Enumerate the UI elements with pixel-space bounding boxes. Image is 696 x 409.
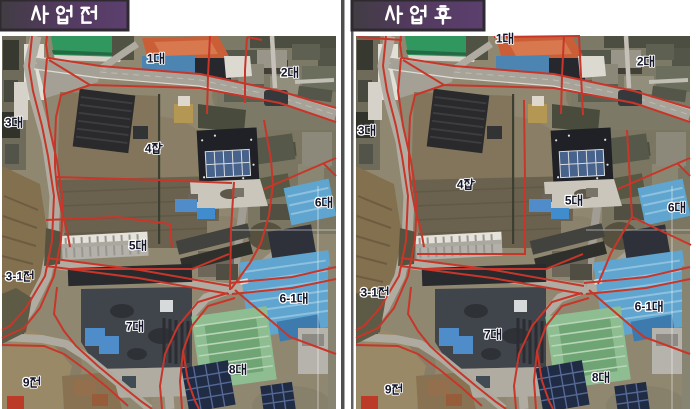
svg-text:3: 3 — [358, 123, 365, 137]
svg-text:3-1: 3-1 — [361, 285, 379, 299]
svg-text:9: 9 — [385, 382, 392, 396]
svg-text:9: 9 — [23, 375, 30, 389]
svg-text:6: 6 — [315, 195, 322, 209]
svg-text:3: 3 — [5, 115, 12, 129]
svg-text:7: 7 — [484, 327, 491, 341]
svg-text:5: 5 — [565, 193, 572, 207]
svg-text:5: 5 — [129, 238, 136, 252]
svg-text:2: 2 — [281, 65, 288, 79]
svg-text:3-1: 3-1 — [6, 269, 24, 283]
svg-text:6-1: 6-1 — [280, 291, 298, 305]
svg-text:4: 4 — [457, 177, 464, 191]
svg-text:1: 1 — [147, 51, 154, 65]
svg-text:7: 7 — [126, 319, 133, 333]
svg-text:8: 8 — [592, 370, 599, 384]
svg-text:1: 1 — [496, 31, 503, 45]
svg-text:8: 8 — [229, 362, 236, 376]
svg-text:4: 4 — [145, 141, 152, 155]
svg-text:2: 2 — [637, 54, 644, 68]
svg-text:6: 6 — [668, 200, 675, 214]
svg-text:6-1: 6-1 — [635, 299, 653, 313]
